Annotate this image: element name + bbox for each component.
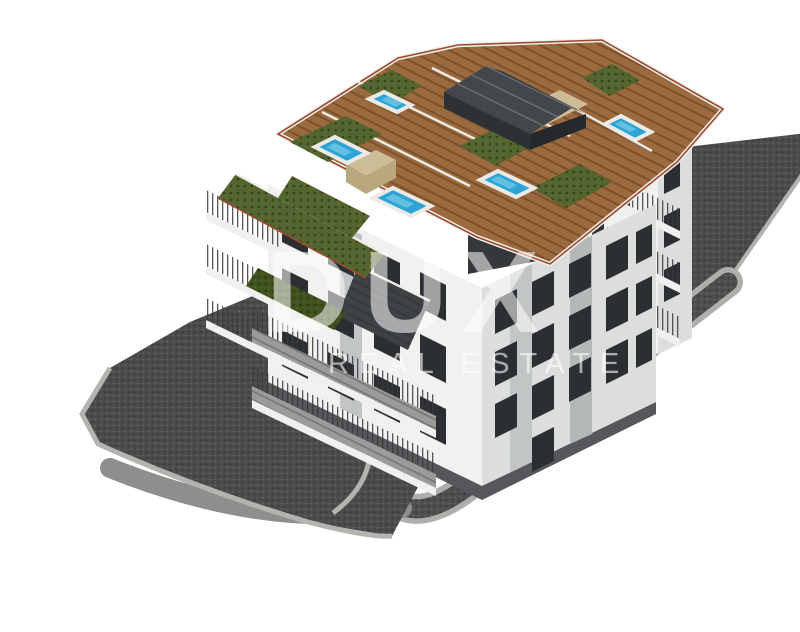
render-canvas: DUX REAL ESTATE Aerial 3D architectural …: [40, 16, 800, 616]
aerial-render: [40, 16, 800, 616]
